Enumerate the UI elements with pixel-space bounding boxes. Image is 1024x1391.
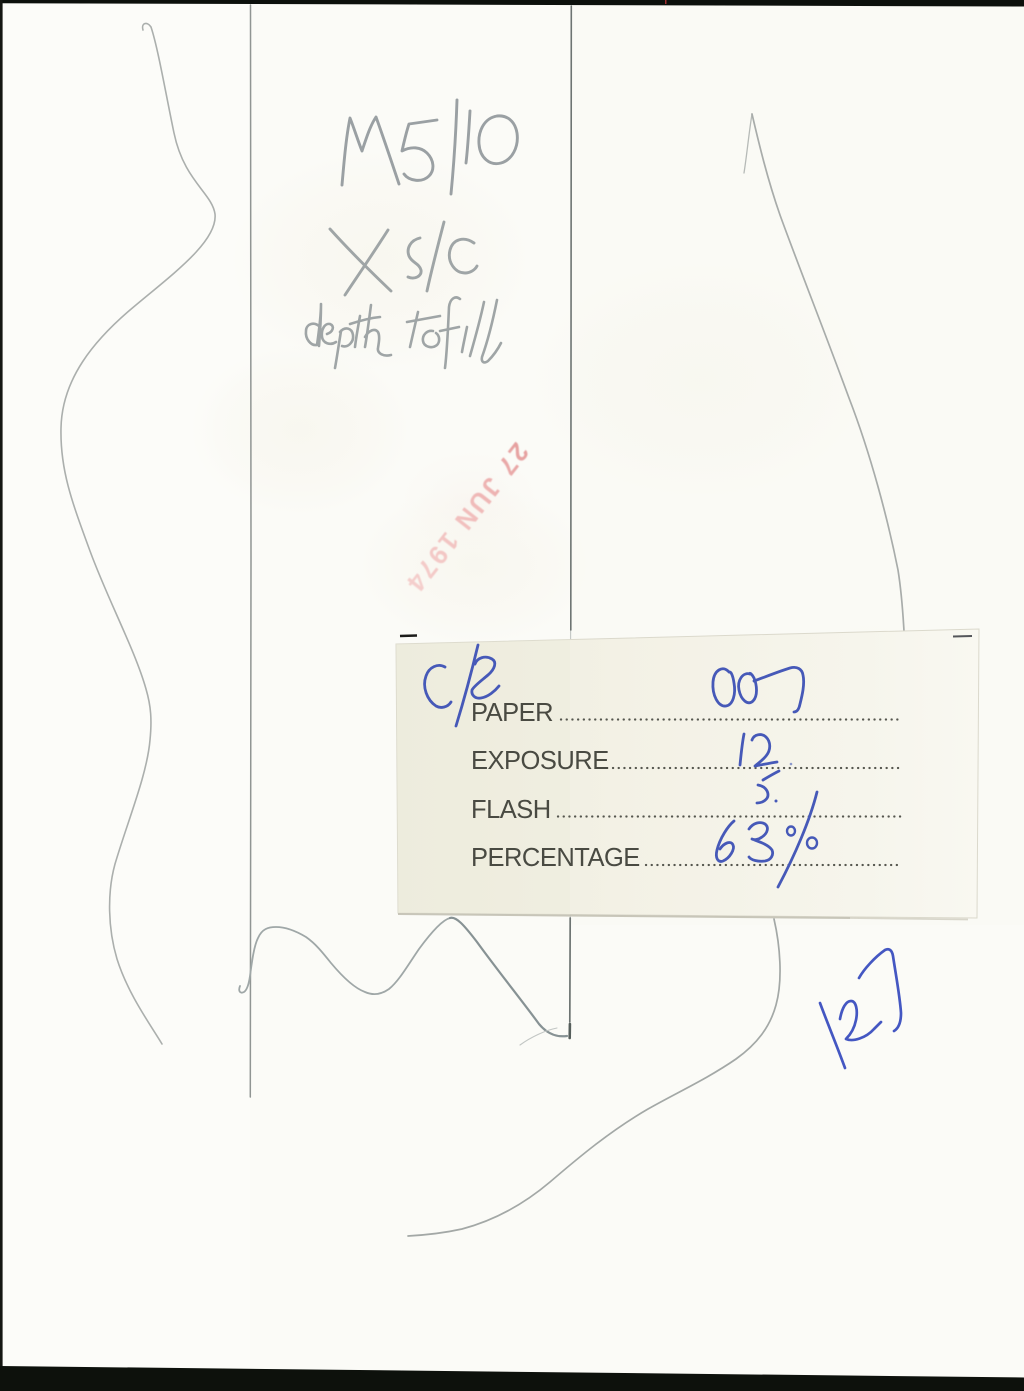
svg-text:PERCENTAGE: PERCENTAGE (471, 844, 640, 872)
svg-text:PAPER: PAPER (471, 699, 553, 727)
svg-text:FLASH: FLASH (471, 796, 551, 824)
svg-text:EXPOSURE: EXPOSURE (471, 747, 609, 775)
